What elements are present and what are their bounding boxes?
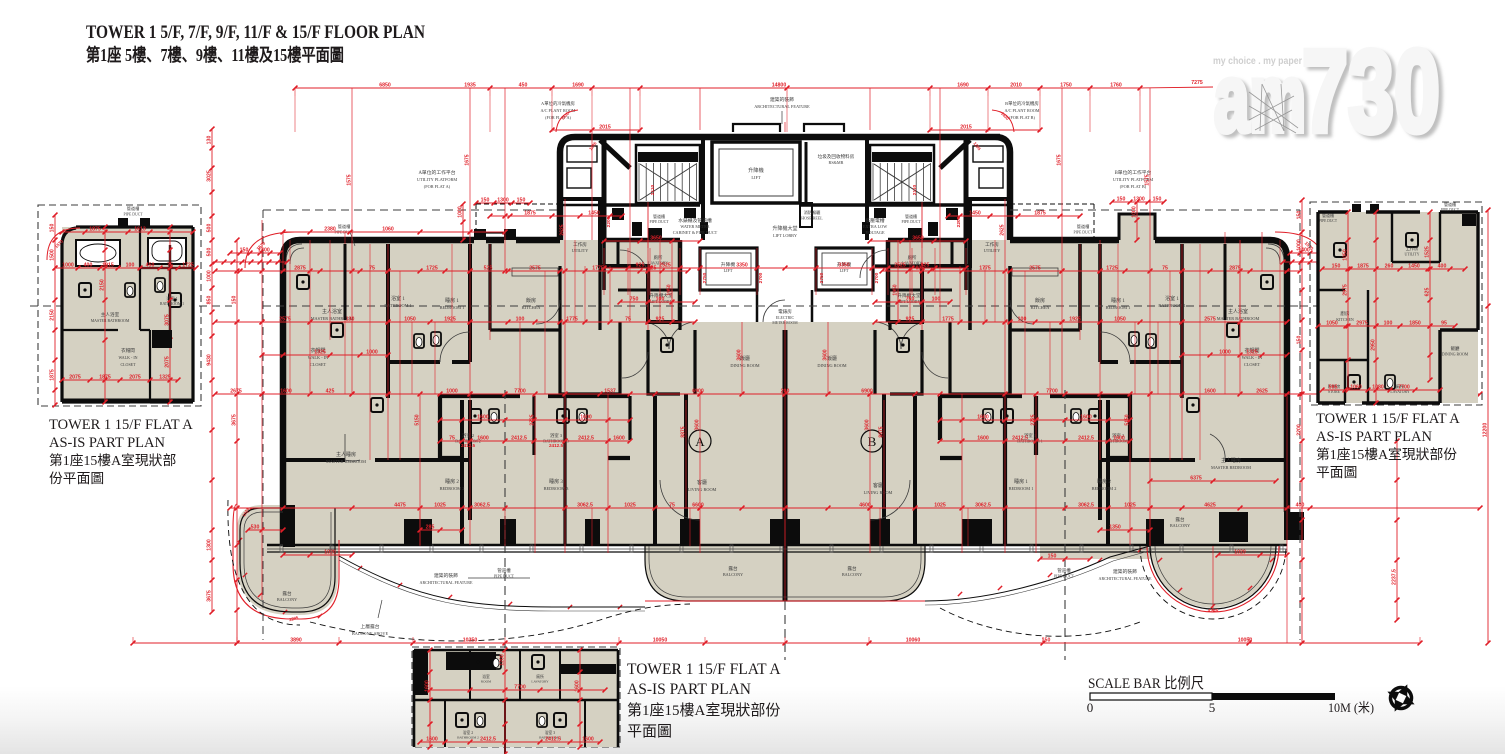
svg-text:260: 260 [1385, 264, 1394, 270]
svg-text:WALK - IN: WALK - IN [1242, 355, 1263, 360]
svg-text:第1座15樓A室現狀部份: 第1座15樓A室現狀部份 [1316, 446, 1457, 462]
svg-text:(FOR FLAT B): (FOR FLAT B) [1009, 115, 1035, 120]
svg-text:2412.5: 2412.5 [578, 436, 594, 442]
svg-text:飯房: 飯房 [1035, 297, 1045, 304]
svg-text:浴室 1: 浴室 1 [1165, 295, 1179, 302]
svg-text:1050: 1050 [1114, 317, 1126, 323]
svg-text:3890: 3890 [290, 638, 302, 644]
svg-text:SCALE BAR 比例尺: SCALE BAR 比例尺 [1088, 675, 1204, 692]
svg-text:1000: 1000 [446, 389, 458, 395]
svg-text:1600: 1600 [977, 415, 989, 421]
svg-text:TOWER 1 15/F FLAT A: TOWER 1 15/F FLAT A [1316, 411, 1460, 427]
svg-text:A單位的冷氣機房: A單位的冷氣機房 [541, 100, 576, 107]
svg-text:露台: 露台 [1175, 516, 1185, 523]
svg-text:WALK - IN: WALK - IN [308, 355, 329, 360]
svg-text:1750: 1750 [1060, 83, 1072, 89]
svg-text:MASTER BEDROOM: MASTER BEDROOM [1211, 465, 1251, 470]
svg-text:1000: 1000 [62, 263, 74, 269]
svg-text:DINING ROOM: DINING ROOM [1442, 353, 1469, 357]
svg-text:UTILITY: UTILITY [572, 248, 589, 253]
svg-text:管道槽: 管道槽 [127, 205, 140, 212]
svg-text:2625: 2625 [1000, 224, 1006, 235]
svg-text:RS&MR: RS&MR [829, 160, 844, 165]
svg-text:上層露台: 上層露台 [360, 623, 379, 630]
svg-text:730: 730 [1302, 26, 1440, 157]
svg-text:主人浴室: 主人浴室 [1228, 308, 1248, 315]
svg-text:BALCONY: BALCONY [723, 572, 743, 577]
svg-text:75: 75 [449, 436, 455, 442]
svg-text:3600: 3600 [737, 349, 743, 360]
svg-text:1020: 1020 [1234, 550, 1246, 556]
svg-text:BALCONY: BALCONY [277, 597, 297, 602]
svg-text:第1座 5樓、7樓、9樓、11樓及15樓平面圖: 第1座 5樓、7樓、9樓、11樓及15樓平面圖 [86, 45, 344, 65]
svg-text:2412.5: 2412.5 [511, 436, 527, 442]
svg-text:UTILITY: UTILITY [1405, 253, 1420, 257]
svg-text:1875: 1875 [89, 227, 101, 233]
svg-text:2110: 2110 [650, 184, 656, 195]
svg-text:WALK - IN: WALK - IN [118, 355, 137, 360]
svg-text:7700: 7700 [1046, 389, 1058, 395]
svg-text:100: 100 [126, 263, 135, 269]
svg-text:1450: 1450 [969, 211, 981, 217]
svg-text:1600: 1600 [477, 436, 489, 442]
svg-text:750: 750 [630, 297, 639, 303]
svg-text:2575: 2575 [279, 317, 291, 323]
svg-text:AS-IS PART PLAN: AS-IS PART PLAN [49, 435, 166, 451]
svg-text:CLOSET: CLOSET [120, 362, 136, 367]
svg-text:595: 595 [1329, 385, 1338, 391]
svg-text:1060: 1060 [382, 227, 394, 233]
svg-text:AS-IS PART PLAN: AS-IS PART PLAN [1316, 429, 1433, 445]
svg-text:1775: 1775 [566, 317, 578, 323]
svg-text:BALCONY: BALCONY [1170, 523, 1190, 528]
svg-text:LIVING ROOM: LIVING ROOM [864, 490, 893, 495]
svg-text:10050: 10050 [653, 638, 668, 644]
svg-text:1675: 1675 [465, 154, 471, 165]
svg-text:2750: 2750 [702, 272, 708, 283]
svg-text:95: 95 [1441, 321, 1447, 327]
svg-text:3600: 3600 [823, 349, 829, 360]
svg-text:1000: 1000 [1132, 206, 1138, 218]
svg-text:2412.5: 2412.5 [480, 737, 496, 743]
svg-text:75: 75 [669, 503, 675, 509]
svg-text:睡房 3: 睡房 3 [549, 478, 563, 485]
svg-text:露台: 露台 [728, 565, 738, 572]
svg-text:750: 750 [906, 297, 915, 303]
svg-text:睡房 2: 睡房 2 [445, 478, 459, 485]
svg-text:1850: 1850 [1409, 321, 1421, 327]
svg-text:850: 850 [207, 296, 213, 305]
svg-text:12200: 12200 [1483, 423, 1489, 438]
svg-text:3600: 3600 [865, 419, 871, 430]
svg-text:1050: 1050 [1326, 321, 1338, 327]
svg-text:9430: 9430 [207, 354, 213, 366]
svg-text:建築的裝飾: 建築的裝飾 [770, 96, 794, 103]
svg-text:2525: 2525 [659, 263, 671, 269]
svg-text:1025: 1025 [934, 503, 946, 509]
svg-text:浴室 3: 浴室 3 [545, 730, 556, 735]
svg-text:1600: 1600 [1204, 389, 1216, 395]
svg-text:150: 150 [1042, 638, 1051, 644]
svg-text:1935: 1935 [464, 83, 476, 89]
svg-text:400: 400 [84, 263, 93, 269]
svg-text:2200: 2200 [1297, 424, 1303, 436]
svg-text:(FOR FLAT B): (FOR FLAT B) [1120, 184, 1147, 189]
svg-text:1600: 1600 [426, 737, 438, 743]
svg-text:管道槽: 管道槽 [1077, 223, 1090, 230]
svg-text:BEDROOM 2: BEDROOM 2 [440, 486, 465, 491]
svg-text:2237.5: 2237.5 [1392, 569, 1398, 585]
svg-text:2015: 2015 [599, 125, 611, 131]
svg-text:1025: 1025 [624, 503, 636, 509]
svg-text:1400: 1400 [1298, 248, 1310, 254]
svg-text:ELECTRIC: ELECTRIC [776, 316, 795, 320]
svg-text:ROOM: ROOM [481, 680, 491, 684]
svg-text:1915: 1915 [102, 263, 114, 269]
svg-text:5: 5 [1209, 700, 1216, 715]
svg-text:1600: 1600 [477, 415, 489, 421]
svg-text:MASTER BEDROOM: MASTER BEDROOM [326, 459, 366, 464]
svg-text:4625: 4625 [1204, 503, 1216, 509]
svg-text:150: 150 [240, 248, 249, 254]
svg-text:WATER METER: WATER METER [680, 224, 709, 229]
svg-text:2015: 2015 [960, 125, 972, 131]
svg-text:5150: 5150 [415, 414, 421, 425]
svg-text:3025: 3025 [207, 170, 213, 182]
svg-text:1875: 1875 [1034, 211, 1046, 217]
svg-text:2975: 2975 [1356, 321, 1368, 327]
svg-text:2150: 2150 [100, 279, 106, 291]
svg-text:管道槽: 管道槽 [905, 213, 917, 219]
svg-text:7700: 7700 [1398, 385, 1410, 391]
svg-text:3675: 3675 [207, 590, 213, 602]
svg-text:LAVATORY: LAVATORY [531, 680, 549, 684]
svg-text:7700: 7700 [514, 685, 526, 691]
svg-text:2625: 2625 [1256, 389, 1268, 395]
svg-text:LIFT: LIFT [840, 268, 849, 273]
svg-text:1600: 1600 [575, 680, 581, 692]
svg-text:浴室 1: 浴室 1 [391, 295, 405, 302]
svg-text:TOWER 1 5/F, 7/F, 9/F, 11/F &: TOWER 1 5/F, 7/F, 9/F, 11/F & 15/F FLOOR… [86, 22, 425, 43]
svg-text:10M (米): 10M (米) [1328, 700, 1374, 715]
svg-text:1600: 1600 [425, 680, 431, 692]
svg-text:1575: 1575 [1145, 174, 1151, 185]
svg-text:400: 400 [1296, 503, 1305, 509]
svg-text:8875: 8875 [681, 426, 687, 437]
svg-text:2075: 2075 [165, 356, 171, 368]
svg-text:STORE: STORE [1328, 390, 1341, 394]
svg-text:BATHROOM 1: BATHROOM 1 [1158, 303, 1185, 308]
svg-text:150: 150 [232, 296, 238, 305]
svg-text:1450: 1450 [1408, 264, 1420, 270]
svg-text:14800: 14800 [772, 83, 787, 89]
svg-text:廁所: 廁所 [536, 674, 544, 679]
svg-text:100: 100 [932, 297, 941, 303]
svg-text:1600: 1600 [977, 436, 989, 442]
svg-text:1525: 1525 [1425, 246, 1431, 258]
svg-text:2075: 2075 [129, 375, 141, 381]
svg-text:1300: 1300 [497, 198, 509, 204]
svg-text:285: 285 [426, 525, 435, 531]
svg-text:1000: 1000 [458, 206, 464, 218]
svg-text:925: 925 [636, 263, 645, 269]
svg-text:2010: 2010 [1010, 83, 1022, 89]
svg-text:PIPE DUCT: PIPE DUCT [1073, 231, 1093, 235]
svg-text:BEDROOM 2: BEDROOM 2 [1092, 486, 1117, 491]
svg-text:150: 150 [1332, 264, 1341, 270]
svg-text:1690: 1690 [957, 83, 969, 89]
svg-text:1020: 1020 [324, 550, 336, 556]
svg-text:1950: 1950 [667, 284, 673, 295]
svg-text:1300: 1300 [207, 539, 213, 551]
svg-text:500: 500 [207, 224, 213, 233]
svg-text:525: 525 [484, 266, 493, 272]
svg-text:建築的裝飾: 建築的裝飾 [434, 572, 458, 579]
svg-text:DINING ROOM: DINING ROOM [817, 363, 846, 368]
svg-text:2380: 2380 [324, 227, 336, 233]
svg-text:1760: 1760 [1110, 83, 1122, 89]
svg-text:睡房 1: 睡房 1 [1014, 478, 1028, 485]
svg-text:主人浴室: 主人浴室 [101, 311, 120, 318]
svg-text:1875: 1875 [50, 369, 56, 381]
svg-text:AS-IS PART PLAN: AS-IS PART PLAN [627, 681, 751, 698]
svg-text:3350: 3350 [736, 263, 748, 269]
svg-text:2412.5: 2412.5 [1078, 436, 1094, 442]
svg-text:LIFT LOBBY: LIFT LOBBY [773, 233, 797, 238]
svg-text:PIPE DUCT: PIPE DUCT [123, 213, 143, 217]
svg-text:2875: 2875 [1229, 266, 1241, 272]
svg-text:2412.5: 2412.5 [1012, 436, 1028, 442]
svg-text:MASTER BATHROOM: MASTER BATHROOM [91, 319, 130, 323]
svg-text:2875: 2875 [294, 266, 306, 272]
svg-text:BALCONY ABOVE: BALCONY ABOVE [352, 631, 389, 636]
svg-text:2675: 2675 [230, 389, 242, 395]
svg-text:BATHROOM 1: BATHROOM 1 [384, 303, 411, 308]
svg-text:主人睡房: 主人睡房 [336, 451, 356, 458]
svg-text:管道槽: 管道槽 [653, 213, 665, 219]
svg-text:100: 100 [656, 297, 665, 303]
svg-text:400: 400 [1438, 264, 1447, 270]
svg-text:450: 450 [146, 263, 155, 269]
svg-text:BEDROOM 1: BEDROOM 1 [1009, 486, 1034, 491]
svg-text:LIFT: LIFT [751, 175, 761, 180]
svg-text:份平面圖: 份平面圖 [49, 471, 104, 486]
svg-text:4600: 4600 [859, 503, 871, 509]
svg-text:150: 150 [1117, 197, 1126, 203]
svg-text:1690: 1690 [572, 83, 584, 89]
svg-text:530: 530 [251, 525, 260, 531]
svg-text:2975: 2975 [1343, 284, 1349, 296]
svg-text:1613: 1613 [134, 227, 146, 233]
svg-text:0: 0 [1087, 700, 1094, 715]
svg-text:客廳: 客廳 [873, 482, 883, 489]
svg-text:LIVING ROOM: LIVING ROOM [688, 487, 717, 492]
svg-text:MASTER BATHROOM: MASTER BATHROOM [1217, 316, 1260, 321]
svg-text:管道槽: 管道槽 [1444, 201, 1456, 207]
svg-text:1725: 1725 [426, 266, 438, 272]
svg-text:PIPE DUCT: PIPE DUCT [1319, 219, 1338, 223]
svg-text:水錶櫃及管道槽: 水錶櫃及管道槽 [678, 217, 712, 224]
svg-text:1600: 1600 [1113, 436, 1125, 442]
svg-text:1925: 1925 [1069, 317, 1081, 323]
svg-text:500: 500 [207, 248, 213, 257]
svg-text:升降機: 升降機 [748, 166, 764, 174]
svg-text:2750: 2750 [819, 272, 825, 283]
svg-text:1350: 1350 [1109, 525, 1121, 531]
svg-text:1060: 1060 [1350, 385, 1362, 391]
svg-text:1450: 1450 [588, 211, 600, 217]
svg-text:CABINET & PIPE DUCT: CABINET & PIPE DUCT [673, 230, 718, 235]
svg-text:平面圖: 平面圖 [1316, 465, 1357, 480]
svg-text:浴室 2: 浴室 2 [463, 730, 474, 735]
svg-text:低壓電槽: 低壓電槽 [865, 217, 884, 224]
svg-text:LIFT: LIFT [724, 268, 733, 273]
svg-text:平面圖: 平面圖 [627, 723, 672, 740]
svg-text:1950: 1950 [893, 284, 899, 295]
svg-text:3062.5: 3062.5 [474, 503, 490, 509]
svg-text:1875: 1875 [1357, 264, 1369, 270]
svg-text:425: 425 [326, 389, 335, 395]
svg-text:CLOSET: CLOSET [1244, 362, 1261, 367]
svg-text:飯房: 飯房 [526, 297, 536, 304]
svg-text:1925: 1925 [444, 317, 456, 323]
svg-text:6850: 6850 [379, 83, 391, 89]
svg-text:管道槽: 管道槽 [338, 223, 351, 230]
svg-text:工作房: 工作房 [985, 241, 999, 248]
svg-text:10050: 10050 [1238, 638, 1253, 644]
svg-text:主人浴室: 主人浴室 [322, 308, 342, 315]
svg-text:2575: 2575 [529, 266, 541, 272]
svg-text:2150: 2150 [50, 309, 56, 321]
svg-text:TOWER 1 15/F FLAT A: TOWER 1 15/F FLAT A [627, 661, 781, 678]
svg-text:UTILITY PLATFORM: UTILITY PLATFORM [417, 177, 457, 182]
svg-text:衣帽間: 衣帽間 [121, 347, 135, 354]
svg-text:主人睡房: 主人睡房 [1221, 457, 1241, 464]
svg-text:3062.5: 3062.5 [577, 503, 593, 509]
svg-text:1600: 1600 [1080, 415, 1092, 421]
svg-text:2525: 2525 [894, 263, 906, 269]
svg-text:130: 130 [207, 136, 213, 145]
svg-text:7275: 7275 [1191, 80, 1203, 86]
svg-text:UTILITY: UTILITY [984, 248, 1001, 253]
svg-text:8875: 8875 [879, 426, 885, 437]
svg-text:10350: 10350 [463, 638, 478, 644]
svg-text:6375: 6375 [1190, 476, 1202, 482]
svg-text:第1座15樓A室現狀部份: 第1座15樓A室現狀部份 [627, 701, 780, 719]
svg-text:BATHROOM 2: BATHROOM 2 [457, 736, 479, 740]
svg-text:露台: 露台 [847, 565, 857, 572]
svg-text:工作房: 工作房 [1406, 245, 1419, 252]
svg-text:4475: 4475 [394, 503, 406, 509]
svg-text:A/C PLANT ROOM: A/C PLANT ROOM [540, 108, 575, 113]
svg-text:升降機大堂: 升降機大堂 [772, 225, 797, 232]
svg-text:廚房: 廚房 [1340, 310, 1350, 317]
svg-text:1200: 1200 [500, 654, 506, 666]
svg-text:10060: 10060 [906, 638, 921, 644]
svg-text:建築的裝飾: 建築的裝飾 [1113, 568, 1137, 575]
svg-text:150: 150 [1153, 197, 1162, 203]
svg-text:1600: 1600 [613, 436, 625, 442]
svg-text:TOWER 1 15/F FLAT A: TOWER 1 15/F FLAT A [49, 417, 193, 433]
svg-text:150: 150 [1297, 336, 1303, 345]
svg-text:450: 450 [519, 83, 528, 89]
svg-text:客廳: 客廳 [697, 479, 707, 486]
svg-text:2700: 2700 [758, 272, 764, 283]
svg-text:電錶房: 電錶房 [778, 308, 792, 315]
svg-text:1500: 1500 [50, 249, 56, 261]
svg-text:2575: 2575 [1204, 317, 1216, 323]
svg-text:130: 130 [346, 317, 355, 323]
svg-text:(FOR FLAT A): (FOR FLAT A) [424, 184, 451, 189]
svg-text:3062.5: 3062.5 [1078, 503, 1094, 509]
svg-text:KITCHEN: KITCHEN [1336, 317, 1354, 322]
svg-text:ARCHITECTURAL FEATURE: ARCHITECTURAL FEATURE [420, 580, 473, 585]
svg-text:BATHROOM 1: BATHROOM 1 [160, 302, 184, 306]
svg-text:HOSE REEL: HOSE REEL [801, 216, 823, 221]
svg-text:1325: 1325 [159, 375, 171, 381]
svg-text:am: am [1214, 45, 1306, 152]
svg-text:BALCONY: BALCONY [842, 572, 862, 577]
svg-text:1575: 1575 [347, 174, 353, 185]
svg-text:B: B [868, 434, 877, 449]
svg-text:1875: 1875 [524, 211, 536, 217]
svg-text:VOLTAGE: VOLTAGE [865, 230, 884, 235]
svg-text:1600: 1600 [580, 415, 592, 421]
svg-text:1537: 1537 [604, 389, 616, 395]
svg-text:3350: 3350 [838, 263, 850, 269]
svg-text:1000: 1000 [366, 350, 378, 356]
svg-text:1025: 1025 [434, 503, 446, 509]
svg-text:2412.5: 2412.5 [549, 443, 563, 448]
svg-text:CLOSET: CLOSET [310, 362, 327, 367]
svg-text:2200: 2200 [606, 216, 612, 227]
svg-text:1725: 1725 [1106, 266, 1118, 272]
svg-text:150: 150 [1048, 554, 1057, 560]
svg-text:1600: 1600 [582, 737, 594, 743]
svg-text:3075: 3075 [165, 314, 171, 326]
svg-text:KITCHEN: KITCHEN [522, 305, 541, 310]
svg-text:ARCHITECTURAL FEATURE: ARCHITECTURAL FEATURE [1099, 576, 1152, 581]
svg-text:KITCHEN: KITCHEN [1031, 305, 1050, 310]
svg-text:飯廳: 飯廳 [1451, 345, 1460, 352]
svg-text:1050: 1050 [404, 317, 416, 323]
svg-text:100: 100 [516, 317, 525, 323]
svg-text:2625: 2625 [560, 224, 566, 235]
svg-text:LAVATORY: LAVATORY [1390, 390, 1409, 394]
svg-text:3600: 3600 [695, 419, 701, 430]
svg-text:150: 150 [50, 224, 56, 233]
svg-text:150: 150 [481, 198, 490, 204]
svg-text:150: 150 [517, 198, 526, 204]
svg-text:2950: 2950 [1371, 339, 1377, 351]
svg-text:2412.5: 2412.5 [545, 737, 561, 743]
svg-text:PIPE DUCT: PIPE DUCT [901, 220, 921, 224]
svg-text:B單位的冷氣機房: B單位的冷氣機房 [1005, 100, 1039, 107]
svg-text:1325: 1325 [1246, 350, 1258, 356]
svg-text:1675: 1675 [1057, 154, 1063, 165]
svg-text:1775: 1775 [592, 266, 604, 272]
svg-text:2575: 2575 [1029, 266, 1041, 272]
svg-text:PIPE DUCT: PIPE DUCT [649, 220, 669, 224]
svg-text:1725: 1725 [182, 263, 194, 269]
svg-text:3675: 3675 [232, 414, 238, 426]
svg-text:1000: 1000 [207, 270, 213, 282]
svg-text:垃圾及回收物料房: 垃圾及回收物料房 [818, 153, 855, 160]
svg-text:150: 150 [1297, 211, 1303, 220]
svg-text:A單位的工作平台: A單位的工作平台 [418, 169, 455, 176]
svg-text:管道槽: 管道槽 [1322, 212, 1334, 218]
svg-text:EXTRA LOW: EXTRA LOW [863, 224, 887, 229]
